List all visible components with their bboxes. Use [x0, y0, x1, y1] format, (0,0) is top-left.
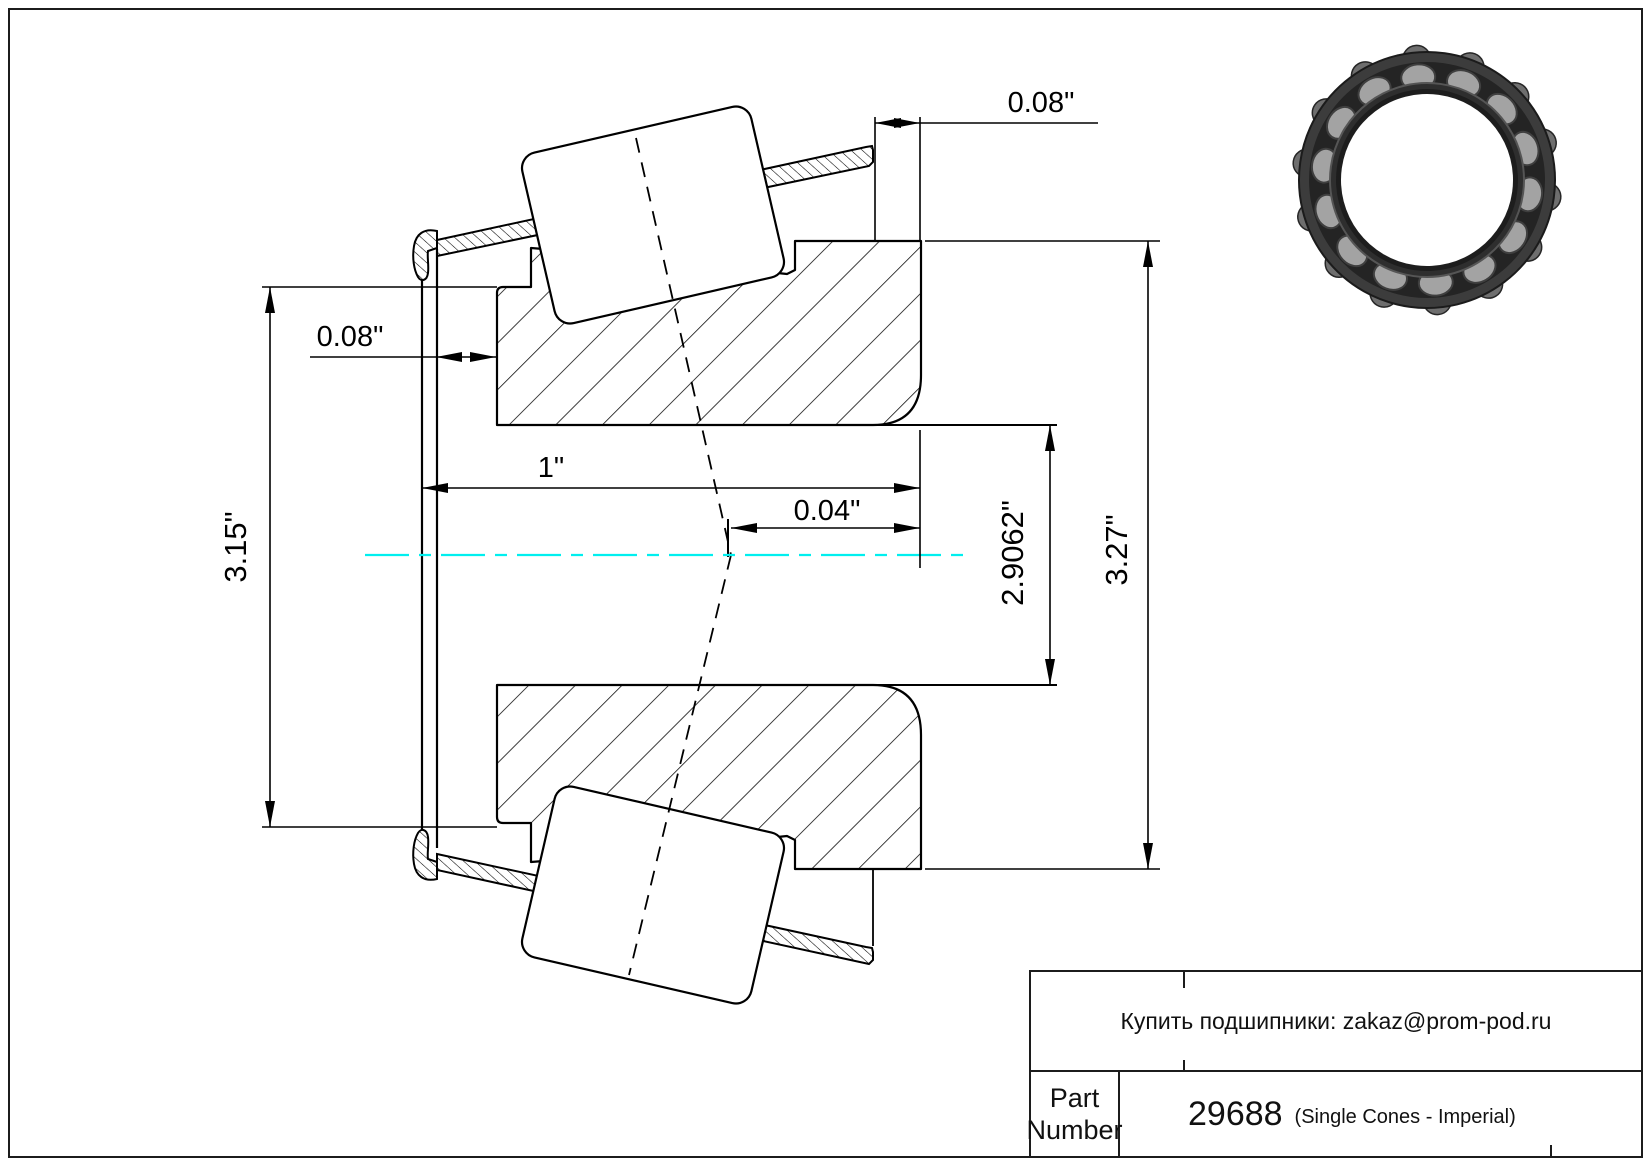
fold-mark-middle	[1183, 1060, 1185, 1070]
dim-cage-protrusion-top: 0.08"	[1008, 87, 1075, 119]
dim-effective-center: 0.04"	[794, 495, 861, 527]
dim-bore-diameter: 2.9062"	[995, 500, 1030, 606]
contact-row: Купить подшипники: zakaz@prom-pod.ru	[1031, 972, 1641, 1072]
dim-outside-diameter: 3.27"	[1099, 514, 1134, 585]
part-number-label: Part Number	[1031, 1072, 1120, 1156]
title-block: Купить подшипники: zakaz@prom-pod.ru Par…	[1029, 970, 1643, 1158]
bearing-photo	[1275, 28, 1580, 332]
cage-lip-bottom	[413, 830, 437, 880]
fold-mark-top	[1183, 972, 1185, 988]
cage-lip-top	[413, 230, 437, 280]
part-number-cell: 29688 (Single Cones - Imperial)	[1120, 1072, 1641, 1156]
part-number-row: Part Number 29688 (Single Cones - Imperi…	[1031, 1072, 1641, 1156]
dim-cone-width: 1"	[538, 452, 564, 484]
drawing-sheet: 0.08" 0.08" 1" 0.04" 2.9062" 3.27" 3.15"	[0, 0, 1649, 1167]
part-number-value: 29688	[1188, 1095, 1283, 1134]
dim-cage-protrusion-left: 0.08"	[317, 321, 384, 353]
fold-mark-bottom	[1550, 1145, 1552, 1156]
part-series-note: (Single Cones - Imperial)	[1295, 1100, 1516, 1129]
contact-text: Купить подшипники: zakaz@prom-pod.ru	[1121, 1008, 1552, 1035]
dim-cage-flange-diameter: 3.15"	[218, 511, 253, 582]
